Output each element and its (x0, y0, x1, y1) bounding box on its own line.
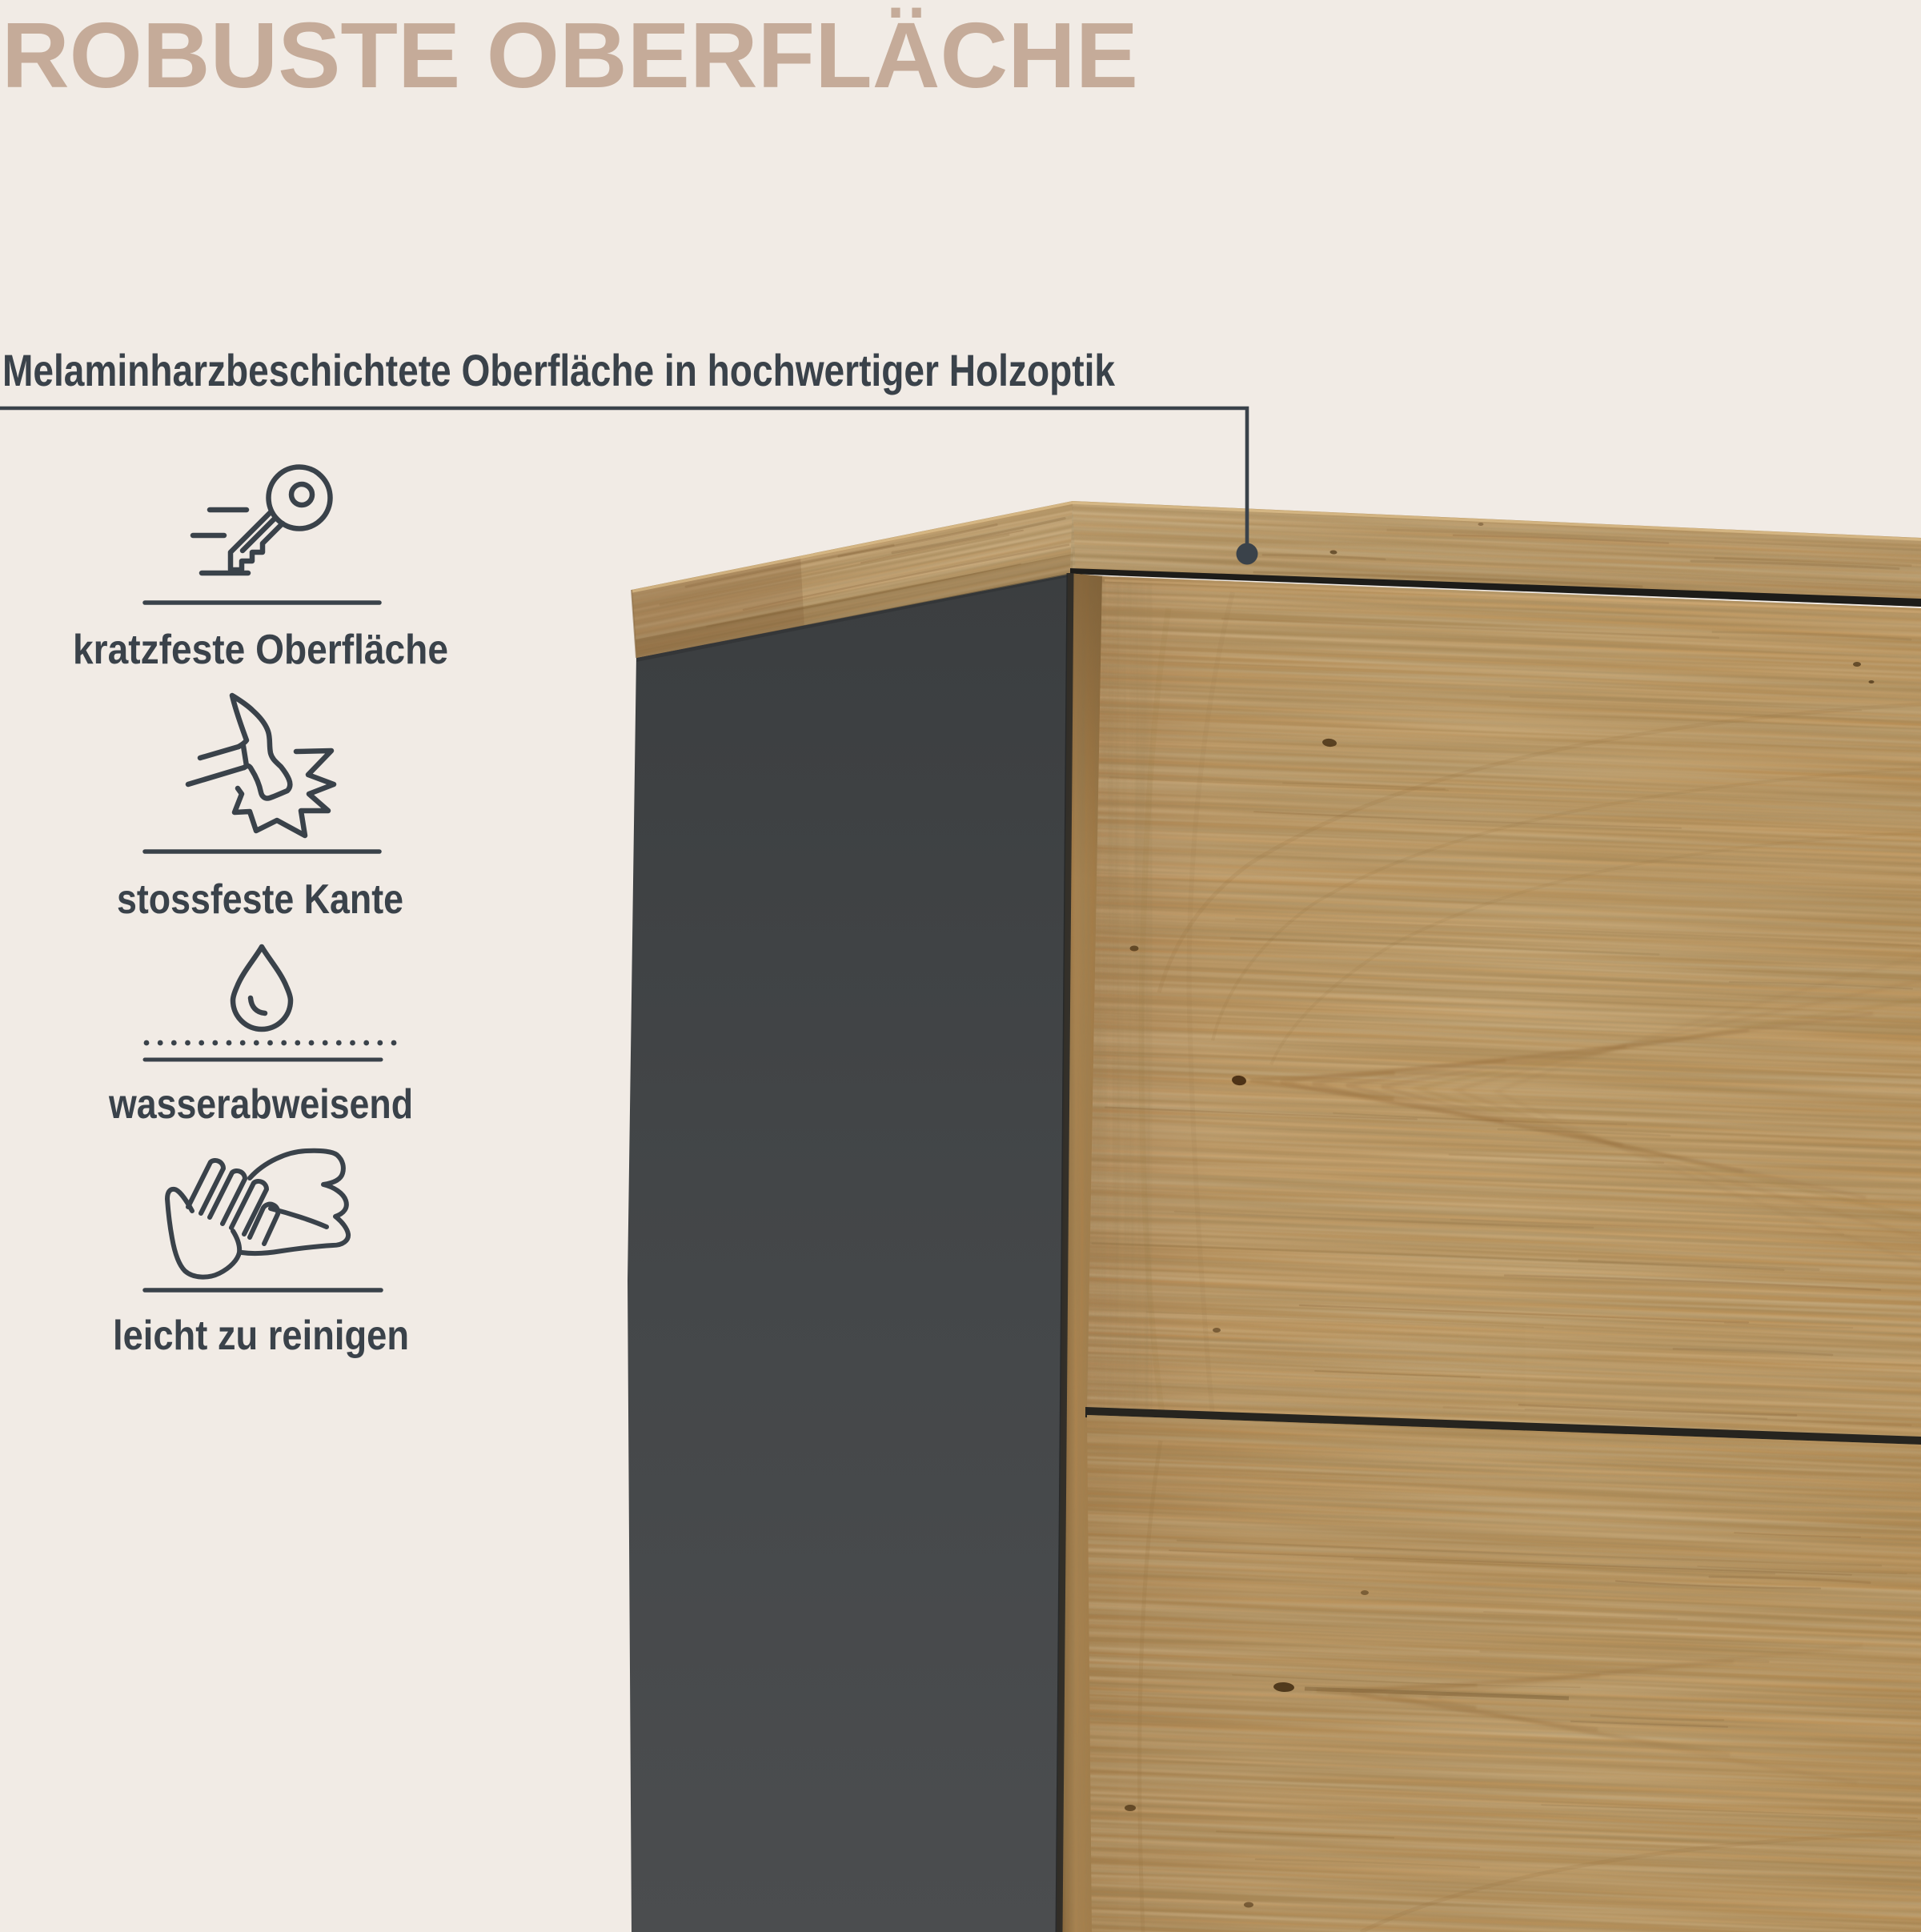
svg-text:leicht zu reinigen: leicht zu reinigen (113, 1313, 409, 1359)
svg-text:ROBUSTE OBERFLÄCHE: ROBUSTE OBERFLÄCHE (2, 3, 1138, 107)
svg-text:stossfeste Kante: stossfeste Kante (117, 876, 403, 923)
svg-text:wasserabweisend: wasserabweisend (108, 1081, 413, 1128)
svg-text:kratzfeste Oberfläche: kratzfeste Oberfläche (73, 627, 448, 673)
svg-text:Melaminharzbeschichtete Oberfl: Melaminharzbeschichtete Oberfläche in ho… (2, 345, 1116, 395)
